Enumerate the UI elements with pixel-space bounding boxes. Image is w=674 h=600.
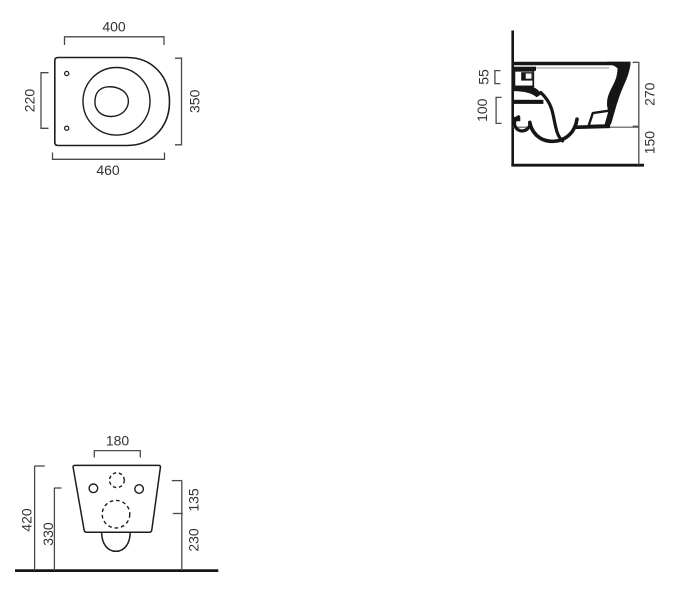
side-inlet-lower-step [513, 86, 542, 97]
side-bowl-inner-wall [541, 93, 563, 141]
plan-dim-line-depth [175, 58, 182, 145]
side-dim-body-height-label: 270 [642, 82, 658, 106]
side-view: 55 100 270 150 [474, 31, 658, 167]
front-dim-total-height-label: 420 [19, 508, 35, 532]
plan-dim-line-overall-width [53, 153, 165, 160]
plan-dim-overall-width-label: 460 [96, 162, 120, 178]
side-dim-floor-clearance-label: 150 [642, 131, 658, 155]
front-dim-line-fixing-span [94, 451, 140, 458]
plan-view: 400 460 350 220 [21, 19, 202, 179]
side-dim-inlet-label: 55 [475, 69, 491, 85]
plan-dim-fixing-centres-label: 220 [21, 89, 37, 113]
front-pan-outline [73, 465, 160, 532]
front-dim-outlet-centre-height-label: 230 [185, 528, 201, 552]
plan-dim-top-width-label: 400 [102, 19, 126, 35]
technical-drawing-page: 400 460 350 220 [0, 0, 674, 600]
front-dim-fixing-height-label: 330 [40, 522, 56, 546]
plan-dim-depth-label: 350 [186, 89, 202, 113]
wc-technical-drawing: 400 460 350 220 [0, 0, 674, 600]
plan-dim-line-top-width [65, 37, 165, 45]
plan-pan-outline [55, 58, 170, 146]
plan-fixing-hole-top [65, 71, 69, 75]
side-inlet-inner-notch [526, 74, 532, 79]
side-outlet-top-bar [513, 100, 544, 104]
front-dim-fixing-span-label: 180 [106, 433, 130, 449]
front-trap-bulge [102, 532, 131, 551]
side-dim-outlet-label: 100 [474, 98, 490, 122]
side-dim-bracket-inlet [495, 71, 501, 84]
plan-fixing-hole-bottom [65, 126, 69, 130]
front-view: 180 420 330 135 230 [15, 433, 218, 571]
side-outlet-bottom-bar [513, 117, 521, 121]
side-foot-block [589, 111, 610, 126]
side-dim-bracket-outlet [496, 97, 502, 123]
plan-dim-line-fixing-centres [41, 73, 49, 129]
front-dim-inlet-offset-label: 135 [185, 488, 201, 512]
